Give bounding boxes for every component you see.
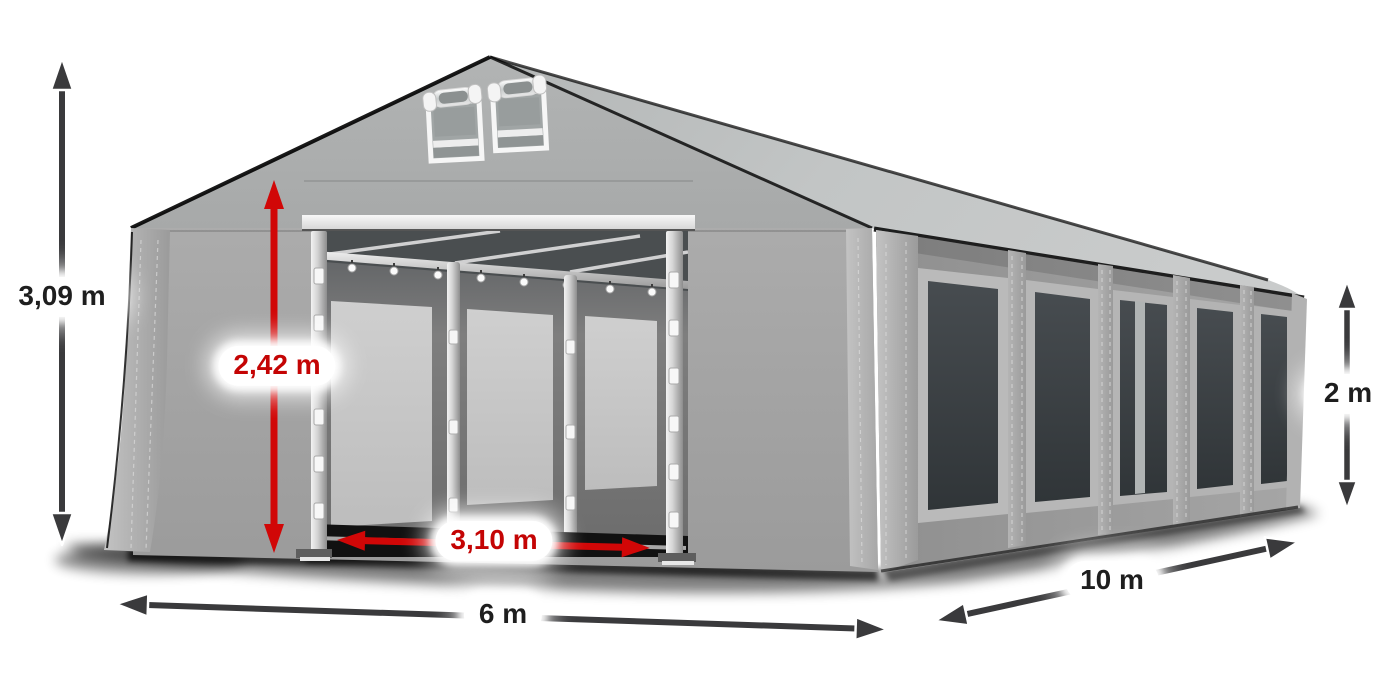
side-window-glass — [928, 281, 998, 510]
arrowhead-down-icon — [51, 513, 73, 545]
post-cover — [1008, 250, 1026, 548]
arrowhead-right-icon — [1265, 531, 1301, 560]
tent-drawing — [0, 0, 1400, 700]
label-entrance-height: 2,42 m — [218, 346, 335, 386]
side-window-center-pole — [1135, 301, 1145, 494]
vent-window-right — [486, 74, 550, 151]
arrowhead-right-icon — [855, 617, 888, 641]
door-roll-beam — [302, 215, 695, 231]
side-window-glass — [1035, 292, 1090, 502]
label-total-height: 3,09 m — [3, 277, 120, 317]
tent-dimension-illustration: 3,09 m 2,42 m 3,10 m 6 m 10 m 2 m — [0, 0, 1400, 700]
post-cover — [1098, 264, 1113, 535]
arrowhead-up-icon — [51, 58, 73, 90]
vent-window-left — [422, 84, 486, 162]
front-right-corner-cover — [876, 230, 918, 573]
entrance — [296, 215, 696, 565]
interior-window — [585, 316, 657, 490]
side-window-glass — [1197, 308, 1233, 489]
arrowhead-down-icon — [1337, 481, 1357, 509]
vent-mesh — [498, 97, 540, 126]
vent-mesh — [433, 107, 475, 137]
post-cover — [1173, 275, 1190, 525]
interior-window — [331, 301, 432, 527]
label-entrance-width: 3,10 m — [435, 521, 552, 561]
arrowhead-left-icon — [933, 603, 969, 632]
arrowhead-up-icon — [1337, 281, 1357, 309]
label-side-length: 10 m — [1065, 561, 1159, 601]
arrowhead-left-icon — [116, 593, 149, 617]
entrance-interior — [312, 231, 688, 557]
side-window-glass — [1261, 314, 1287, 484]
interior-pole — [447, 262, 460, 538]
post-cover — [1240, 285, 1254, 517]
label-side-wall-height: 2 m — [1309, 374, 1387, 414]
interior-window — [467, 309, 553, 505]
label-front-width: 6 m — [464, 595, 542, 635]
